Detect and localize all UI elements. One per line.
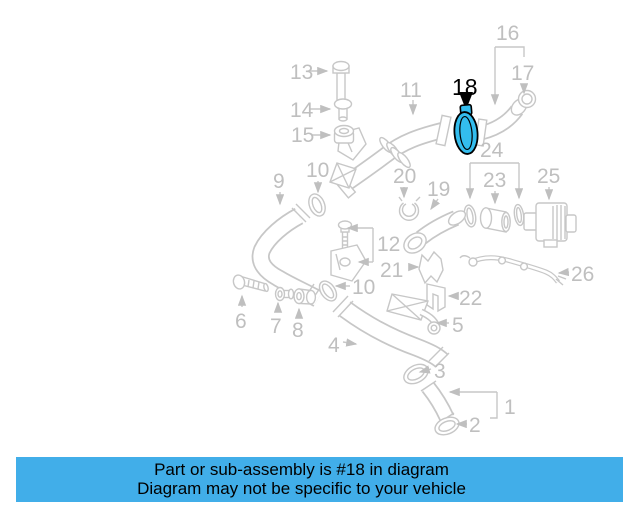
callout-23[interactable]: 23	[483, 169, 506, 192]
exploded-parts-diagram: 1 2 3 4 5 6 7 8 9 10 10 11 12 13 14 15 1…	[0, 0, 640, 512]
callout-20[interactable]: 20	[393, 165, 416, 188]
callout-8[interactable]: 8	[292, 319, 304, 342]
callout-12[interactable]: 12	[377, 233, 400, 256]
callout-7[interactable]: 7	[270, 315, 282, 338]
highlighted-part-18[interactable]	[453, 98, 480, 155]
callout-16[interactable]: 16	[496, 22, 519, 45]
callout-19[interactable]: 19	[427, 178, 450, 201]
callout-25[interactable]: 25	[537, 165, 560, 188]
callout-22[interactable]: 22	[459, 287, 482, 310]
o-ring-17	[519, 91, 536, 108]
channel-clip-22	[427, 284, 445, 311]
callout-2[interactable]: 2	[469, 414, 481, 437]
callout-18-selected[interactable]: 18	[452, 74, 478, 100]
callout-15[interactable]: 15	[291, 124, 314, 147]
callout-14[interactable]: 14	[290, 99, 314, 122]
grommet-8	[294, 289, 315, 304]
callout-1[interactable]: 1	[504, 396, 516, 419]
callout-17[interactable]: 17	[511, 62, 534, 85]
callout-6[interactable]: 6	[235, 310, 247, 333]
part-hose-9	[261, 204, 320, 303]
callout-24[interactable]: 24	[480, 139, 504, 162]
callout-10b[interactable]: 10	[352, 276, 375, 299]
c-clip-20	[399, 197, 420, 220]
part-pump-25	[524, 203, 576, 247]
callout-11[interactable]: 11	[400, 79, 422, 102]
callout-3[interactable]: 3	[434, 360, 446, 383]
banner-line-1: Part or sub-assembly is #18 in diagram	[154, 461, 449, 480]
clamp-3	[401, 360, 432, 387]
banner-line-2: Diagram may not be specific to your vehi…	[137, 480, 466, 499]
part-hose-19	[400, 208, 468, 257]
clamp-10b	[316, 278, 340, 304]
parts-diagram-page: 1 2 3 4 5 6 7 8 9 10 10 11 12 13 14 15 1…	[0, 0, 640, 512]
callout-10a[interactable]: 10	[306, 159, 329, 182]
clamp-2	[432, 414, 461, 438]
part-hose-lower-1	[421, 381, 454, 422]
callout-4[interactable]: 4	[328, 334, 340, 357]
notice-banner: Part or sub-assembly is #18 in diagram D…	[16, 457, 623, 502]
nut-15	[335, 126, 354, 144]
callout-5[interactable]: 5	[452, 314, 464, 337]
spring-clip-21	[419, 252, 443, 283]
bolt-12	[339, 221, 352, 250]
screw-14	[335, 99, 352, 121]
part-connector-23	[481, 208, 511, 232]
rod-26	[460, 256, 566, 285]
clamp-10a	[306, 192, 329, 219]
callout-21[interactable]: 21	[380, 259, 403, 282]
clamp-24-right	[513, 204, 525, 226]
callout-26[interactable]: 26	[571, 263, 594, 286]
callout-13[interactable]: 13	[290, 61, 313, 84]
callout-9[interactable]: 9	[273, 170, 285, 193]
